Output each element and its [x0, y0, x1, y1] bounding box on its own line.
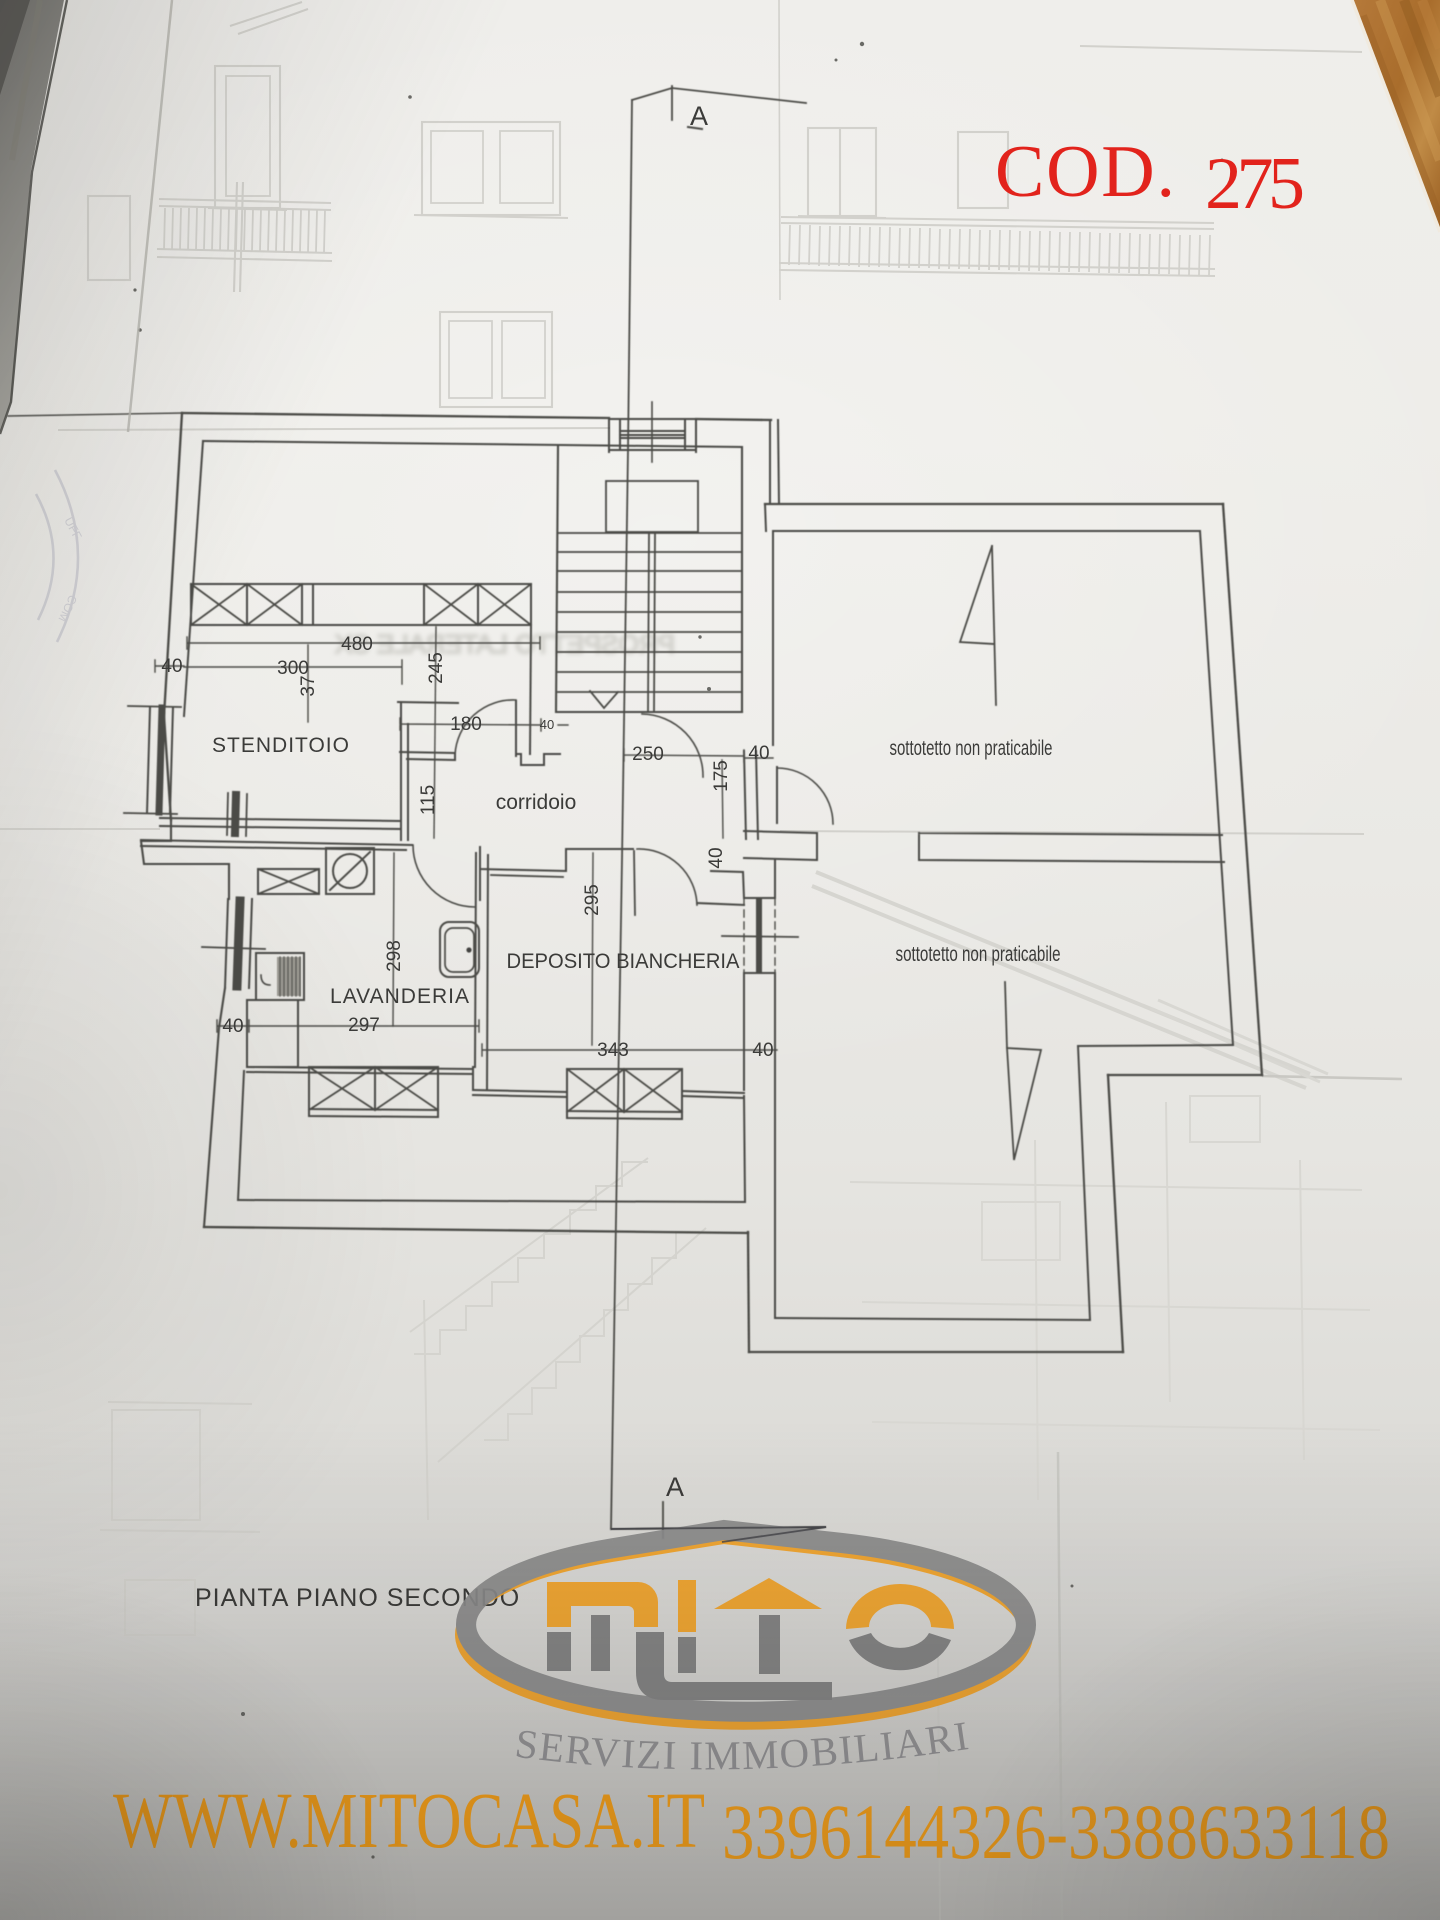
svg-text:37: 37: [298, 675, 319, 696]
svg-text:275: 275: [1205, 143, 1305, 225]
svg-text:40: 40: [706, 847, 727, 868]
svg-text:40: 40: [161, 656, 182, 677]
svg-text:DEPOSITO BIANCHERIA: DEPOSITO BIANCHERIA: [507, 950, 740, 973]
svg-text:A: A: [690, 101, 708, 131]
svg-text:WWW.MITOCASA.IT: WWW.MITOCASA.IT: [113, 1778, 705, 1865]
svg-text:LAVANDERIA: LAVANDERIA: [330, 985, 470, 1008]
svg-text:40: 40: [748, 743, 769, 764]
svg-text:343: 343: [597, 1040, 629, 1061]
svg-text:180: 180: [450, 714, 482, 735]
svg-text:corridoio: corridoio: [496, 791, 577, 814]
svg-text:297: 297: [348, 1015, 380, 1036]
svg-text:40: 40: [222, 1016, 243, 1037]
svg-text:175: 175: [711, 760, 732, 792]
svg-text:115: 115: [418, 785, 439, 815]
svg-text:A: A: [666, 1472, 684, 1502]
svg-text:480: 480: [341, 634, 373, 655]
svg-text:40: 40: [540, 717, 554, 732]
svg-text:COD.: COD.: [995, 131, 1175, 213]
svg-text:sottotetto non praticabile: sottotetto non praticabile: [896, 943, 1061, 966]
svg-text:250: 250: [632, 744, 664, 765]
svg-text:298: 298: [384, 940, 405, 972]
svg-text:UFF: UFF: [61, 515, 84, 542]
svg-text:295: 295: [582, 884, 603, 916]
svg-text:sottotetto non praticabile: sottotetto non praticabile: [890, 737, 1053, 760]
svg-text:245: 245: [426, 652, 447, 684]
svg-text:COM: COM: [55, 593, 80, 624]
svg-text:3396144326-3388633118: 3396144326-3388633118: [722, 1788, 1390, 1875]
svg-text:PROSPETTO LATERALE SX: PROSPETTO LATERALE SX: [335, 629, 675, 659]
svg-text:40: 40: [752, 1040, 773, 1061]
svg-text:STENDITOIO: STENDITOIO: [212, 734, 350, 757]
